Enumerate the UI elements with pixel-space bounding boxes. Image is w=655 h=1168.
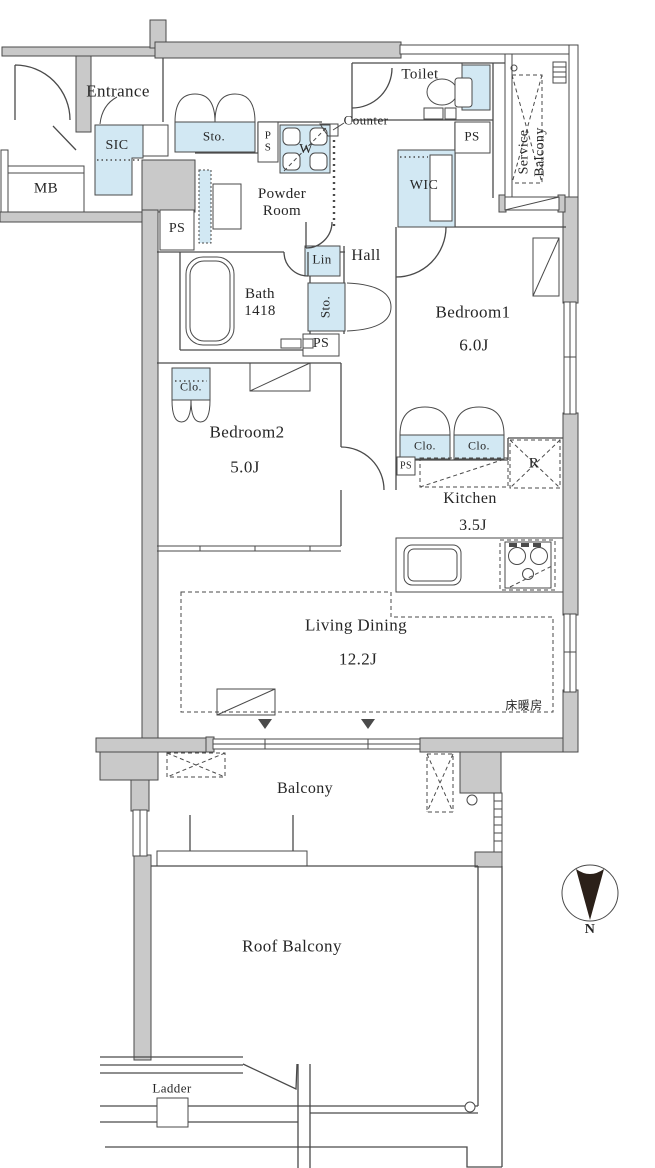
- storage-top-bifold: [175, 94, 255, 122]
- ps-entry-box: [258, 122, 278, 162]
- bedroom1-door-arc: [396, 227, 446, 277]
- bath-door-arc: [284, 252, 308, 276]
- washer-pan-icon: [280, 125, 330, 173]
- closet1-bifold: [400, 407, 450, 435]
- living-east-window: [564, 614, 576, 692]
- ps-toilet-box: [455, 122, 490, 153]
- alcove-west-wall: [1, 150, 8, 212]
- vanity-icon: [199, 170, 241, 243]
- roof-balcony-door-jamb: [298, 1064, 310, 1168]
- north-arrow-icon: [562, 865, 618, 921]
- closet-1: [400, 435, 450, 459]
- closet-bedroom2-bifold: [172, 400, 210, 422]
- storage-hall-bifold: [347, 283, 391, 331]
- storage-hall: [308, 283, 345, 331]
- closet2-bifold: [454, 407, 504, 435]
- bathtub-icon: [186, 257, 313, 348]
- closet-2: [454, 435, 504, 459]
- entrance-door-arc: [15, 65, 70, 120]
- ps-bedroom-box: [397, 457, 415, 475]
- plan-graphics: [0, 0, 655, 1168]
- bedroom1-east-window: [564, 302, 576, 414]
- opening-markers: [258, 719, 375, 729]
- floor-heating-outline: [181, 592, 553, 712]
- storage-top: [175, 122, 255, 152]
- living-door-arc: [341, 447, 384, 490]
- living-south-window: [213, 739, 420, 749]
- stove-icon: [500, 540, 555, 590]
- roof-balcony-parapet: [100, 1057, 243, 1073]
- fridge-space: [510, 440, 560, 488]
- service-balcony-hatch: [512, 75, 542, 183]
- outer-boundary: [105, 1147, 502, 1167]
- closet-bedroom2: [172, 368, 210, 400]
- roof-balcony-right-wall: [478, 866, 502, 1167]
- balcony-partition: [157, 815, 307, 866]
- balcony-hatch-right: [427, 754, 453, 812]
- toilet-icon: [424, 63, 490, 119]
- ladder-box: [157, 1098, 188, 1127]
- linen-shelf: [305, 246, 340, 276]
- toilet-door-arc: [352, 68, 392, 108]
- floor-plan: Entrance MB SIC Sto. P S W Counter Toile…: [0, 0, 655, 1168]
- balcony-hatch-left: [167, 753, 225, 777]
- balcony-structures: [100, 793, 502, 1168]
- kitchen-cupboard-space: [420, 458, 508, 487]
- service-balcony-door: [505, 197, 559, 210]
- balcony-west-window: [133, 810, 147, 856]
- roof-balcony-door: [243, 1064, 297, 1089]
- powder-door-arc: [306, 222, 332, 248]
- ps-powder-box: [160, 210, 194, 250]
- entrance-step-arc: [100, 97, 117, 124]
- balcony-drain-strip: [494, 793, 502, 852]
